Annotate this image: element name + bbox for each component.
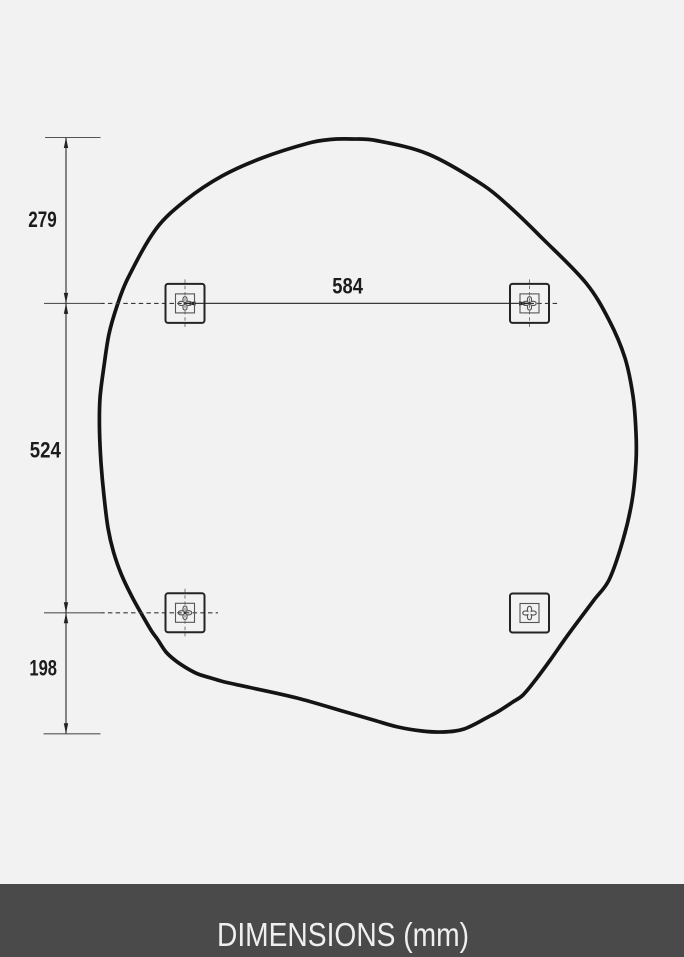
- svg-text:524: 524: [30, 438, 62, 463]
- svg-text:198: 198: [29, 656, 57, 681]
- svg-text:DIMENSIONS (mm): DIMENSIONS (mm): [217, 916, 469, 953]
- svg-text:279: 279: [28, 207, 57, 232]
- svg-text:584: 584: [332, 274, 363, 299]
